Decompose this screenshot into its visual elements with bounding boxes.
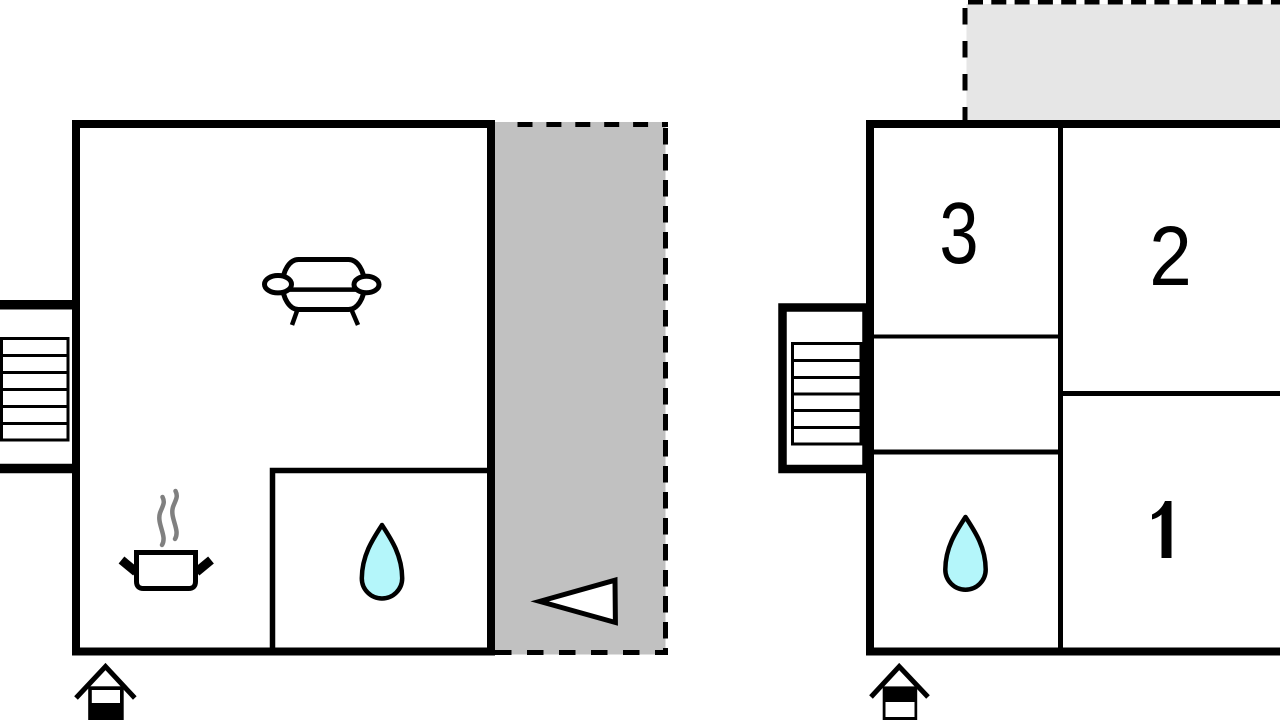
- svg-text:3: 3: [939, 184, 978, 282]
- svg-text:2: 2: [1149, 210, 1192, 304]
